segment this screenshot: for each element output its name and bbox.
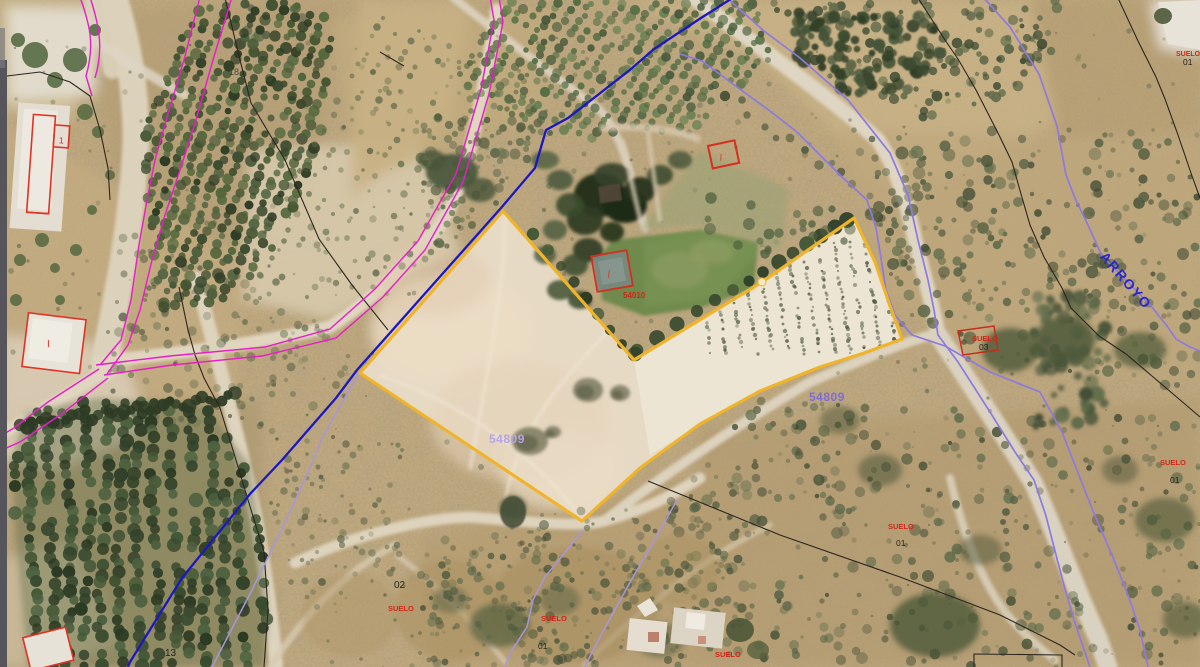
svg-text:02: 02	[394, 580, 406, 591]
svg-text:13: 13	[165, 648, 177, 659]
svg-text:54809: 54809	[489, 432, 525, 446]
svg-text:SUELO: SUELO	[388, 604, 414, 613]
svg-text:SUELO: SUELO	[888, 522, 914, 531]
svg-text:01: 01	[896, 538, 906, 548]
svg-text:03: 03	[979, 342, 989, 352]
svg-text:01: 01	[1183, 57, 1193, 67]
svg-text:I: I	[47, 339, 50, 350]
svg-text:SUELO: SUELO	[1160, 458, 1186, 467]
svg-text:SUELO: SUELO	[715, 650, 741, 659]
svg-text:1: 1	[58, 135, 64, 145]
svg-text:54809: 54809	[809, 390, 845, 404]
svg-text:SUELO: SUELO	[541, 614, 567, 623]
svg-text:54010: 54010	[623, 291, 646, 300]
svg-text:01: 01	[538, 641, 548, 651]
svg-text:18: 18	[229, 67, 239, 77]
svg-text:01: 01	[1170, 475, 1180, 485]
